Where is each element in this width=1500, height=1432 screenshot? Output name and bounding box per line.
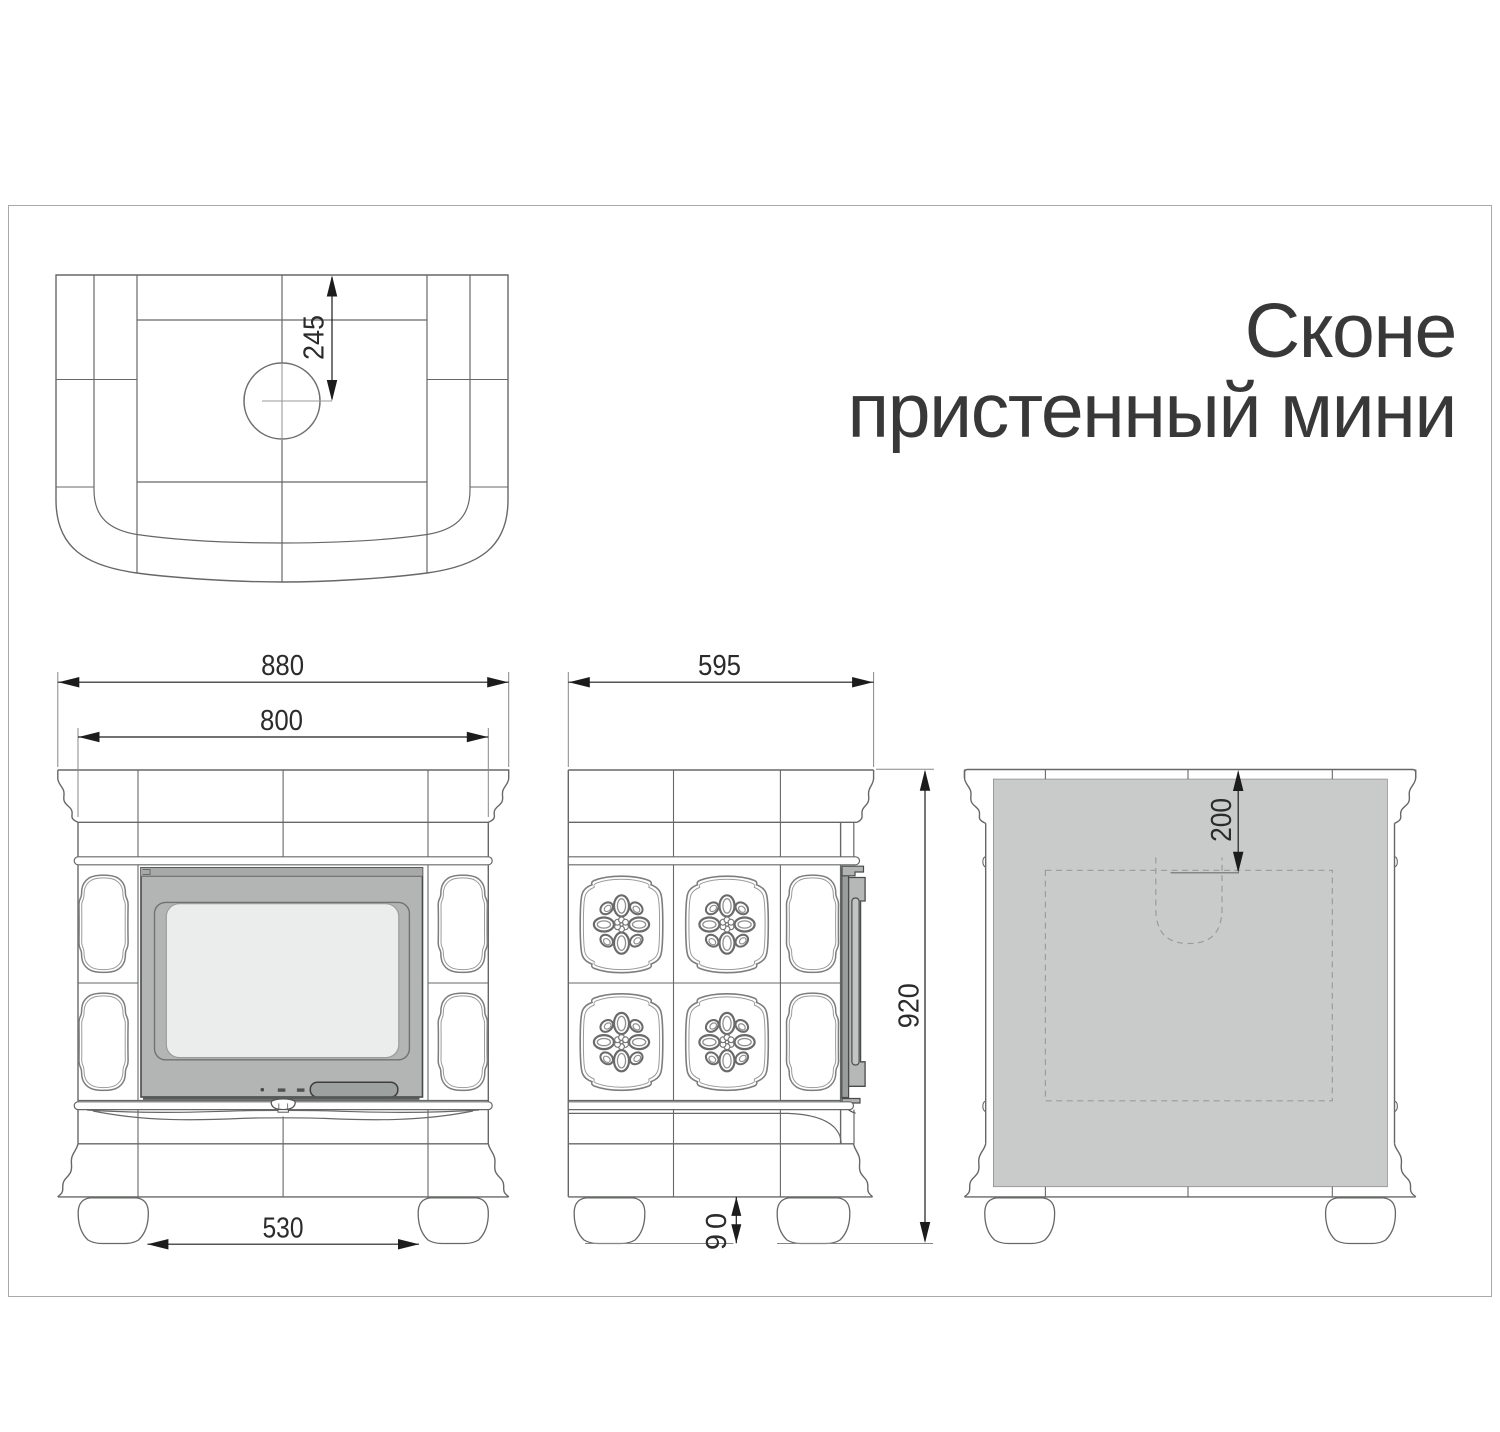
svg-text:800: 800 bbox=[260, 705, 303, 737]
svg-text:пристенный мини: пристенный мини bbox=[847, 368, 1456, 454]
svg-text:200: 200 bbox=[1206, 798, 1238, 842]
svg-text:880: 880 bbox=[261, 650, 304, 682]
svg-text:245: 245 bbox=[299, 315, 331, 360]
svg-text:90: 90 bbox=[701, 1208, 733, 1250]
svg-text:530: 530 bbox=[263, 1212, 304, 1244]
svg-text:Сконе: Сконе bbox=[1245, 288, 1456, 374]
svg-text:920: 920 bbox=[893, 983, 925, 1028]
svg-text:595: 595 bbox=[698, 650, 741, 682]
